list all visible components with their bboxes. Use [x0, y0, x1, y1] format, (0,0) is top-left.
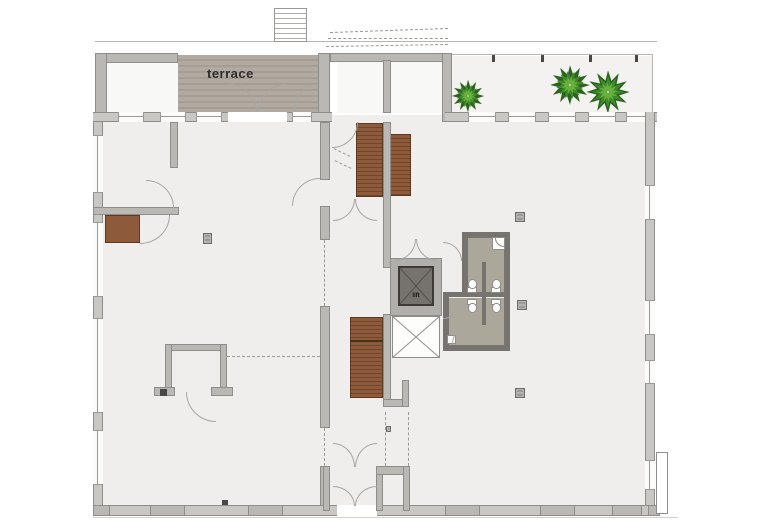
glazing: [118, 112, 144, 122]
wall-segment: [170, 122, 178, 168]
glazing: [93, 222, 103, 297]
wall-segment: [403, 466, 410, 511]
glazing: [468, 112, 496, 122]
glazing: [160, 112, 186, 122]
toilet-icon: [467, 299, 477, 314]
closet-wall: [165, 344, 172, 390]
canopy-dashed-line: [328, 38, 448, 39]
ground-line: [93, 517, 678, 518]
wall-segment: [383, 60, 391, 113]
lift-cab: [398, 266, 434, 306]
glazing: [645, 300, 655, 335]
wall-segment: [320, 306, 330, 428]
terrace-label: terrace: [207, 66, 254, 81]
stair-landing-line: [350, 340, 383, 342]
glazing: [645, 460, 655, 490]
marker-square: [160, 389, 167, 396]
staircase-upper-flight-a: [356, 123, 383, 197]
toilet-icon: [491, 278, 501, 293]
glazing: [645, 185, 655, 220]
window-frame-block: [150, 505, 185, 516]
staircase-lower: [350, 317, 383, 398]
staircase-upper-flight-b: [389, 134, 411, 196]
glazing: [196, 112, 222, 122]
wall-segment: [320, 206, 330, 240]
opening-dashed-line: [324, 428, 325, 466]
void-shaft: [392, 316, 440, 358]
site-boundary: [95, 41, 657, 42]
railing-end: [652, 54, 653, 112]
lift-label: lift: [398, 293, 434, 299]
window-frame-block: [445, 505, 480, 516]
canopy-dashed-line: [326, 44, 448, 47]
floor-plan: terrace: [0, 0, 780, 520]
toilet-icon: [491, 299, 501, 314]
wall-segment: [402, 380, 409, 407]
glazing: [292, 112, 312, 122]
small-marker: [386, 426, 391, 432]
column-marker: [515, 212, 525, 222]
railing: [452, 54, 653, 55]
window-frame-block: [612, 505, 642, 516]
window-frame-block: [248, 505, 283, 516]
column-marker: [515, 388, 525, 398]
closet-wall: [165, 344, 227, 351]
wall-segment: [383, 314, 391, 406]
room-top-b: [391, 62, 442, 113]
counter: [105, 215, 140, 243]
opening-dashed-line: [324, 240, 325, 306]
column-marker: [203, 233, 212, 244]
plant-icon: [584, 68, 632, 116]
column-marker: [517, 300, 527, 310]
wall-segment: [95, 53, 178, 63]
corner-pier: [93, 505, 110, 516]
railing-post: [589, 55, 592, 62]
canopy-dashed-line: [330, 28, 448, 33]
glazing: [645, 360, 655, 384]
glazing: [508, 112, 536, 122]
corridor-dashed-line: [408, 412, 409, 466]
marker-square: [222, 500, 228, 505]
bathroom-wall: [443, 345, 510, 351]
glazing: [93, 430, 103, 485]
exterior-stair: [274, 8, 307, 42]
glazing: [548, 112, 576, 122]
railing-post: [635, 55, 638, 62]
corridor-dashed-line: [385, 412, 386, 466]
closet-wall: [220, 344, 227, 390]
room-top-a: [337, 62, 383, 113]
stall-partition: [482, 297, 486, 325]
plant-icon: [450, 78, 486, 114]
corner-shower-icon: [492, 237, 505, 250]
glazing: [93, 318, 103, 413]
opening-dashed-line: [227, 356, 320, 357]
wall-segment: [320, 122, 330, 180]
window-frame-block: [540, 505, 575, 516]
exterior-protrusion: [656, 452, 668, 514]
railing-post: [492, 55, 495, 62]
stair-stringer-wall: [383, 122, 391, 268]
stall-partition: [482, 262, 486, 292]
entrance-door-opening: [337, 505, 377, 516]
wall-segment: [330, 53, 452, 62]
glazing: [588, 112, 616, 122]
railing-post: [541, 55, 544, 62]
vestibule-wall: [323, 466, 330, 511]
glazing: [93, 135, 103, 193]
room-top-left: [107, 63, 178, 113]
wall-segment: [93, 207, 179, 215]
terrace-door-opening: [228, 112, 287, 122]
toilet-icon: [467, 278, 477, 293]
